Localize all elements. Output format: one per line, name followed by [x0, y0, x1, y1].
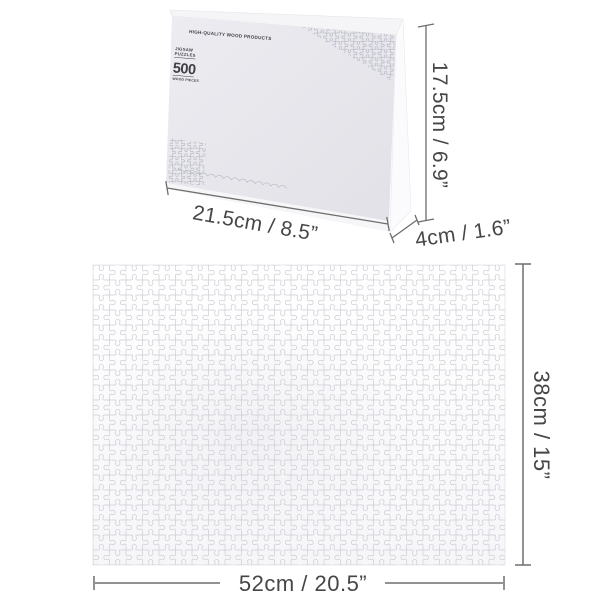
product-dimension-image: HIGH-QUALITY WOOD PRODUCTS JIGSAW PUZZLE… [0, 0, 600, 600]
product-dimensions-figure: HIGH-QUALITY WOOD PRODUCTS JIGSAW PUZZLE… [0, 0, 600, 600]
puzzle-width-dimension: 52cm / 20.5” [94, 571, 504, 596]
box-piece-count: 500 [172, 60, 196, 78]
box-height-dimension: 17.5cm / 6.9” [418, 24, 451, 222]
puzzle-sheet-group [80, 265, 505, 565]
dimension-tick [390, 233, 394, 243]
box-corner-puzzle-pattern-bottom-left [168, 138, 206, 186]
box-height-label: 17.5cm / 6.9” [428, 62, 451, 188]
box-depth-dimension: 4cm / 1.6” [390, 215, 512, 252]
box-depth-label: 4cm / 1.6” [414, 215, 513, 251]
puzzle-height-label: 38cm / 15” [529, 371, 554, 480]
dimension-tick [415, 215, 419, 225]
puzzle-box-group: HIGH-QUALITY WOOD PRODUCTS JIGSAW PUZZLE… [166, 10, 411, 232]
puzzle-width-label: 52cm / 20.5” [239, 571, 367, 596]
puzzle-sheet-pattern [93, 265, 505, 565]
puzzle-height-dimension: 38cm / 15” [515, 264, 554, 565]
